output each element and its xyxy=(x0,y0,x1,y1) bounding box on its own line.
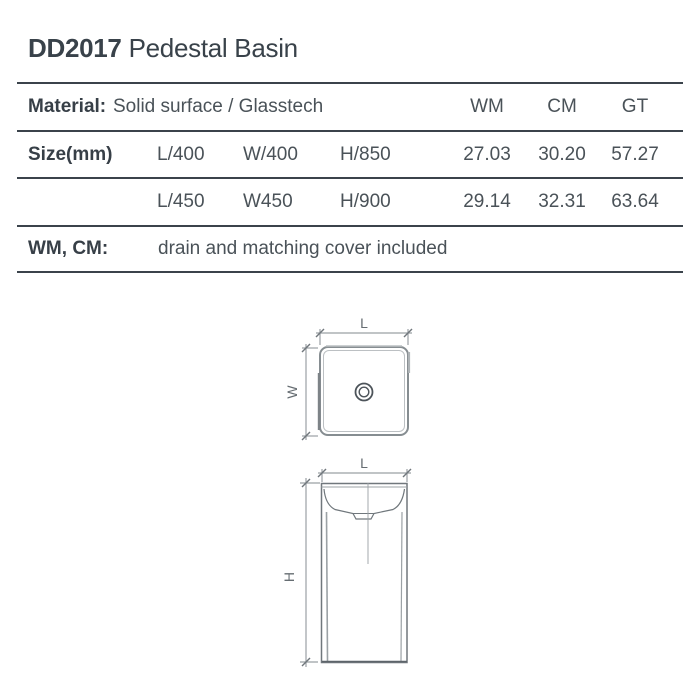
front-view-height-label: H xyxy=(281,572,297,582)
top-view-length-dimension xyxy=(316,329,412,345)
top-view-basin-outline xyxy=(319,346,409,435)
front-view-drawing: L H xyxy=(281,455,411,667)
spec-sheet: DD2017Pedestal Basin Material: Solid sur… xyxy=(0,0,700,700)
front-view-basin-outline xyxy=(322,483,408,663)
technical-drawings: L W xyxy=(0,0,700,700)
top-view-length-label: L xyxy=(360,315,368,331)
top-view-width-dimension xyxy=(302,344,318,440)
top-view-drawing: L W xyxy=(284,315,412,440)
front-view-height-dimension xyxy=(300,478,320,667)
top-view-width-label: W xyxy=(284,385,300,399)
front-view-length-label: L xyxy=(360,455,368,471)
